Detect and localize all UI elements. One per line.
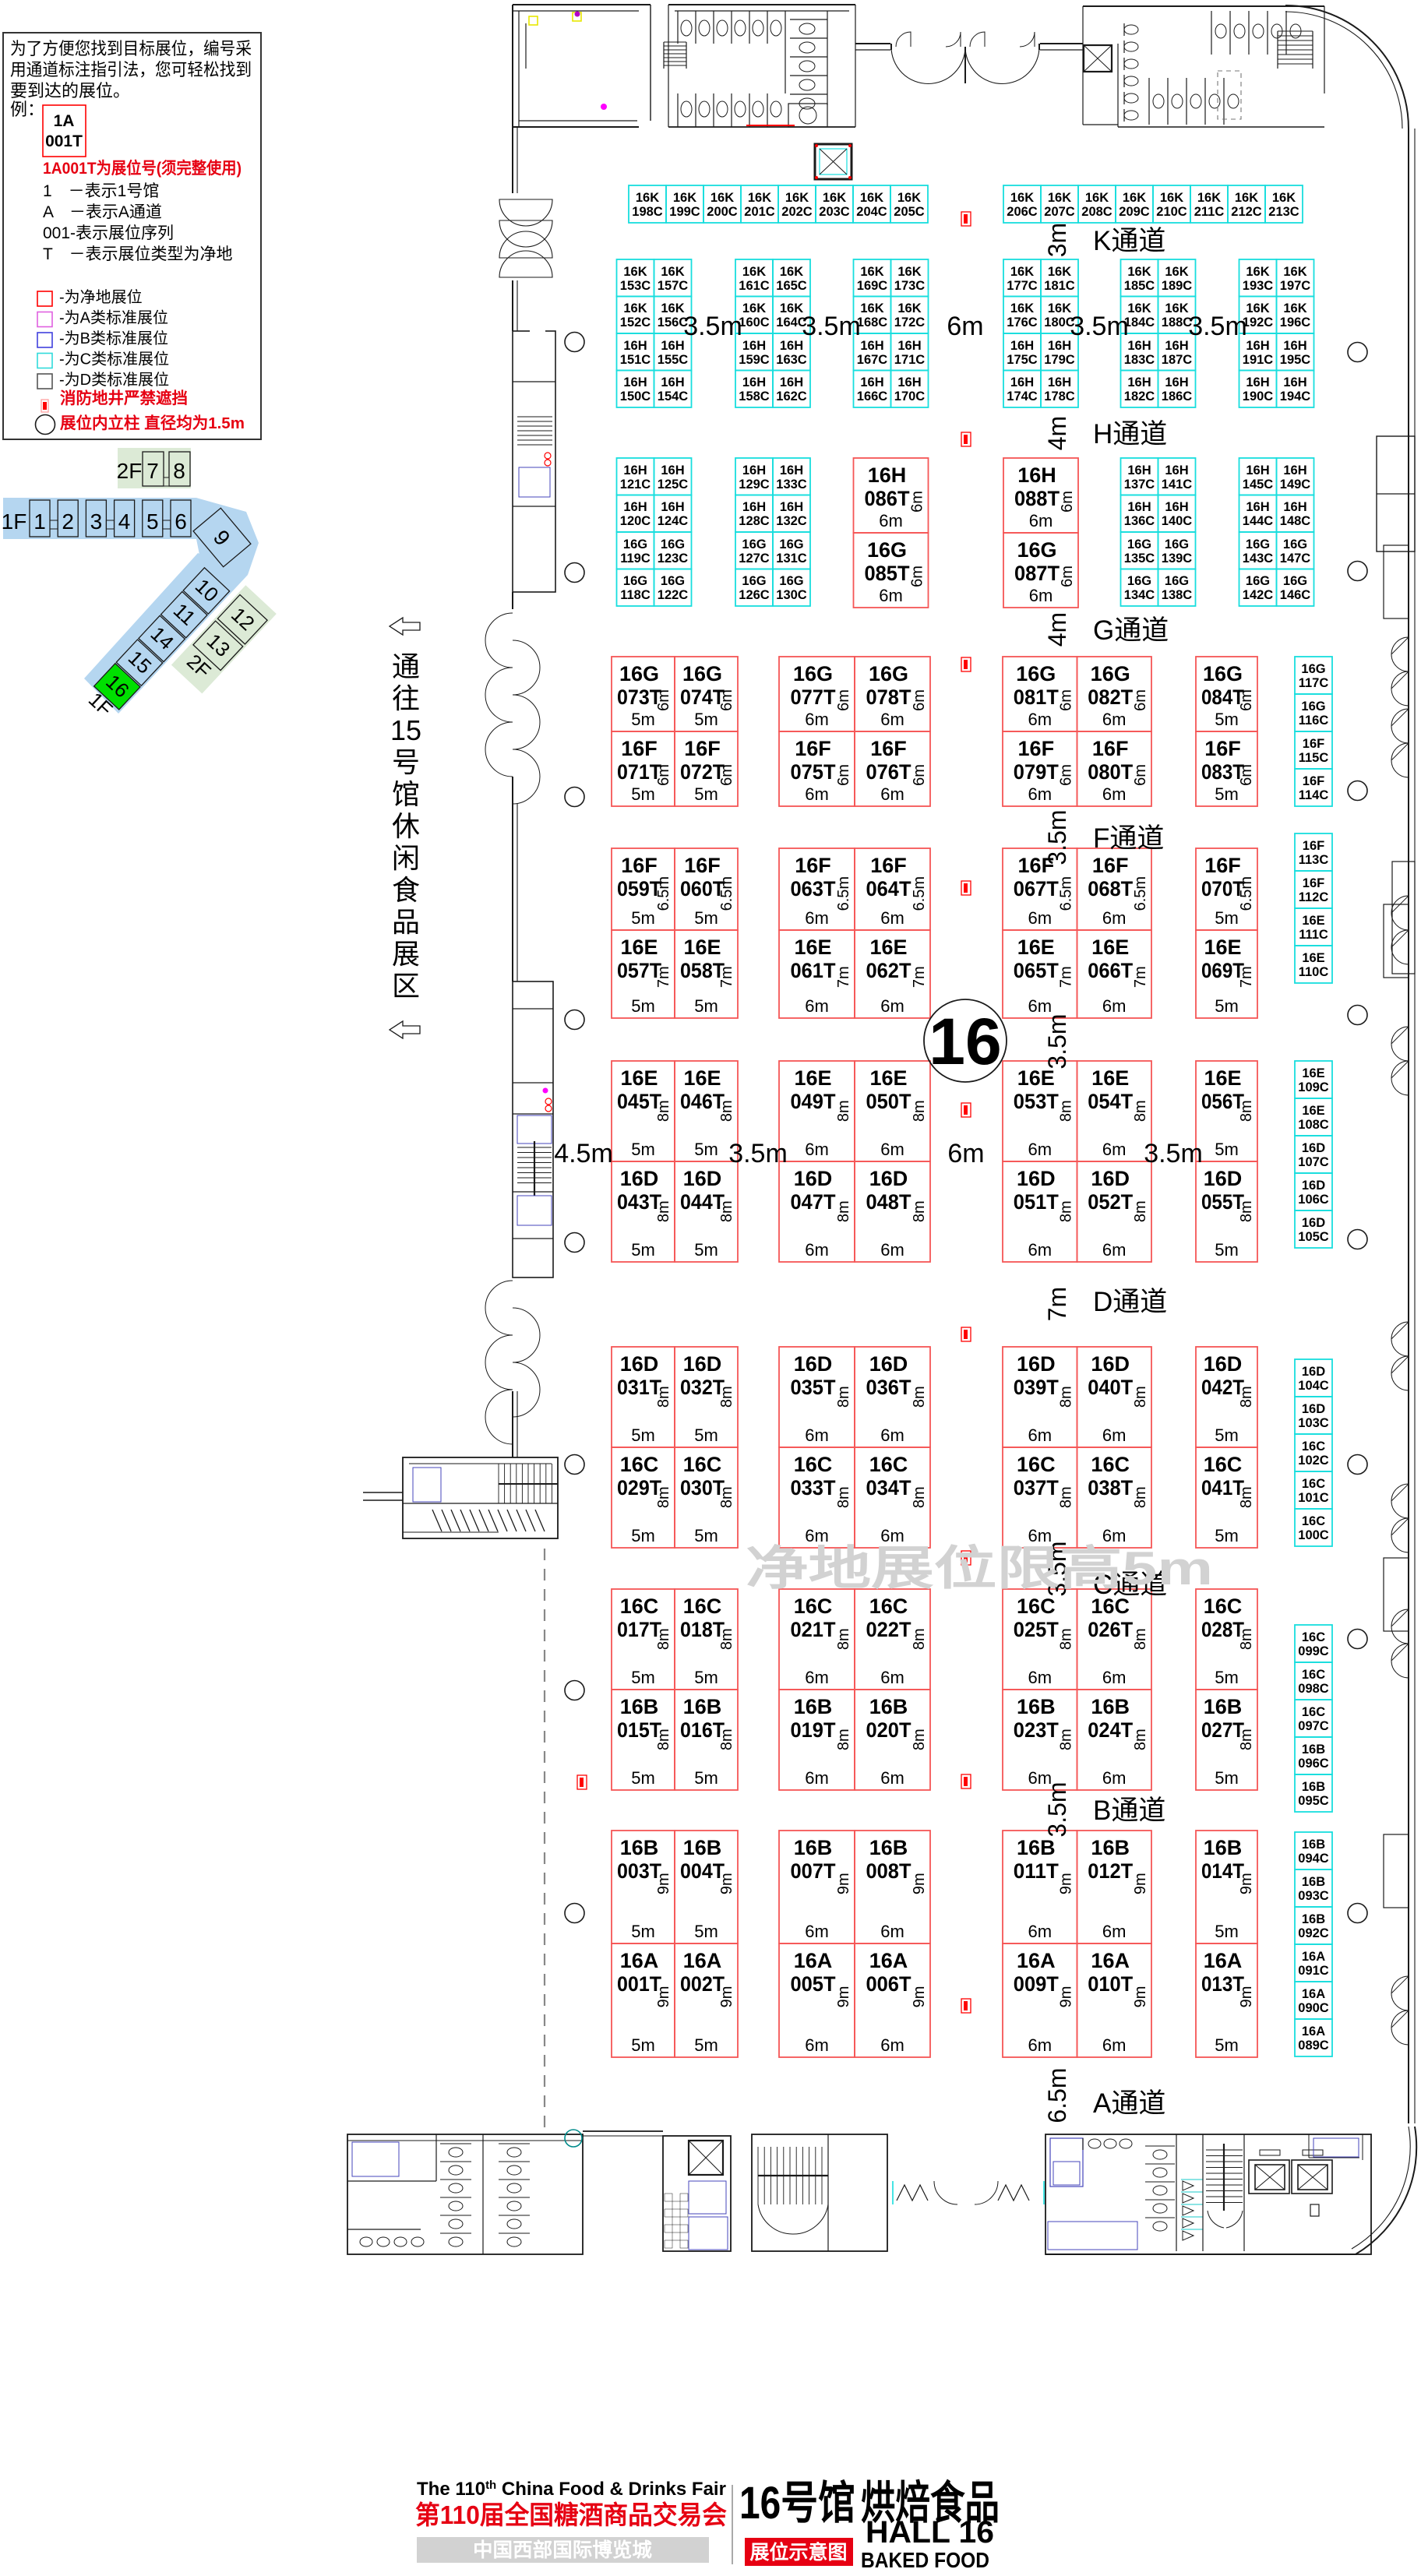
svg-text:16G: 16G bbox=[742, 537, 766, 551]
svg-text:16G: 16G bbox=[1127, 537, 1151, 551]
svg-text:4m: 4m bbox=[1043, 416, 1071, 450]
svg-text:187C: 187C bbox=[1162, 353, 1193, 367]
svg-text:16H: 16H bbox=[1165, 500, 1188, 514]
svg-text:16F: 16F bbox=[870, 854, 907, 877]
svg-text:16E: 16E bbox=[869, 1066, 907, 1090]
svg-text:16H: 16H bbox=[780, 500, 803, 514]
svg-text:5m: 5m bbox=[694, 1526, 718, 1545]
svg-text:16H: 16H bbox=[1048, 375, 1071, 389]
svg-text:9m: 9m bbox=[718, 1986, 735, 2008]
svg-text:050T: 050T bbox=[866, 1090, 911, 1113]
svg-text:5m: 5m bbox=[631, 710, 655, 729]
svg-text:9m: 9m bbox=[718, 1873, 735, 1894]
svg-text:16D: 16D bbox=[683, 1167, 722, 1190]
svg-text:16C: 16C bbox=[1302, 1514, 1325, 1528]
svg-text:16H: 16H bbox=[1017, 463, 1056, 487]
svg-text:117C: 117C bbox=[1299, 676, 1329, 690]
svg-text:038T: 038T bbox=[1088, 1476, 1133, 1499]
svg-text:3.5m: 3.5m bbox=[1188, 312, 1247, 341]
svg-text:6m: 6m bbox=[1029, 511, 1053, 530]
svg-text:16G: 16G bbox=[742, 574, 766, 588]
svg-text:6m: 6m bbox=[1102, 2035, 1127, 2055]
svg-text:往: 往 bbox=[392, 682, 420, 714]
svg-text:148C: 148C bbox=[1280, 514, 1311, 528]
svg-text:102C: 102C bbox=[1298, 1454, 1329, 1468]
svg-text:088T: 088T bbox=[1014, 487, 1060, 510]
svg-text:16E: 16E bbox=[1302, 1104, 1324, 1118]
svg-text:6m: 6m bbox=[1028, 1425, 1053, 1445]
svg-text:174C: 174C bbox=[1007, 389, 1038, 403]
svg-text:The 110th China Food & Drinks: The 110th China Food & Drinks Fair bbox=[417, 2479, 726, 2500]
svg-text:16: 16 bbox=[929, 1005, 1001, 1078]
svg-text:16G: 16G bbox=[1301, 662, 1325, 676]
svg-text:7: 7 bbox=[146, 459, 159, 483]
svg-text:2F: 2F bbox=[117, 459, 143, 483]
svg-text:167C: 167C bbox=[857, 353, 888, 367]
svg-text:6m: 6m bbox=[1028, 1668, 1053, 1687]
svg-text:16D: 16D bbox=[1204, 1167, 1243, 1190]
svg-text:16G: 16G bbox=[1165, 574, 1189, 588]
svg-text:16K: 16K bbox=[1048, 301, 1071, 315]
svg-text:16K: 16K bbox=[1048, 265, 1071, 279]
svg-text:6: 6 bbox=[175, 509, 187, 534]
svg-text:206C: 206C bbox=[1007, 205, 1038, 219]
svg-text:022T: 022T bbox=[866, 1618, 911, 1641]
svg-text:16H: 16H bbox=[868, 463, 907, 487]
svg-text:064T: 064T bbox=[866, 877, 911, 900]
svg-text:16A: 16A bbox=[794, 1949, 833, 1972]
svg-text:8m: 8m bbox=[1238, 1628, 1255, 1650]
svg-text:5m: 5m bbox=[694, 908, 718, 928]
svg-text:16H: 16H bbox=[1246, 375, 1269, 389]
svg-text:16B: 16B bbox=[1302, 1875, 1325, 1889]
svg-text:3.5m: 3.5m bbox=[683, 312, 742, 341]
svg-text:16E: 16E bbox=[620, 1066, 658, 1090]
svg-text:16C: 16C bbox=[1017, 1453, 1056, 1476]
svg-text:037T: 037T bbox=[1014, 1476, 1059, 1499]
svg-text:G通道: G通道 bbox=[1093, 615, 1169, 646]
svg-text:204C: 204C bbox=[856, 205, 887, 219]
svg-text:16C: 16C bbox=[1091, 1453, 1130, 1476]
svg-text:5m: 5m bbox=[694, 710, 718, 729]
svg-text:16H: 16H bbox=[1127, 339, 1151, 353]
svg-text:要到达的展位。: 要到达的展位。 bbox=[10, 81, 130, 100]
svg-text:006T: 006T bbox=[866, 1972, 911, 1996]
svg-text:6m: 6m bbox=[880, 710, 904, 729]
svg-text:063T: 063T bbox=[791, 877, 836, 900]
svg-text:053T: 053T bbox=[1014, 1090, 1059, 1113]
svg-text:052T: 052T bbox=[1088, 1190, 1133, 1214]
svg-text:3.5m: 3.5m bbox=[1043, 1781, 1071, 1837]
svg-text:068T: 068T bbox=[1088, 877, 1133, 900]
svg-text:6.5m: 6.5m bbox=[835, 876, 852, 911]
svg-text:6m: 6m bbox=[947, 1139, 984, 1168]
svg-text:011T: 011T bbox=[1014, 1859, 1059, 1883]
svg-text:6m: 6m bbox=[805, 908, 829, 928]
svg-text:066T: 066T bbox=[1088, 959, 1133, 982]
svg-text:191C: 191C bbox=[1243, 353, 1274, 367]
svg-text:172C: 172C bbox=[894, 315, 926, 329]
svg-text:106C: 106C bbox=[1298, 1193, 1329, 1207]
svg-text:099C: 099C bbox=[1298, 1644, 1329, 1658]
svg-text:131C: 131C bbox=[776, 551, 807, 566]
svg-text:6m: 6m bbox=[805, 1140, 829, 1159]
svg-text:16E: 16E bbox=[869, 936, 907, 959]
svg-text:3.5m: 3.5m bbox=[1043, 1013, 1071, 1069]
svg-text:16H: 16H bbox=[661, 375, 684, 389]
svg-text:16E: 16E bbox=[620, 936, 658, 959]
svg-text:16H: 16H bbox=[1010, 375, 1034, 389]
svg-text:103C: 103C bbox=[1298, 1416, 1329, 1430]
svg-text:3.5m: 3.5m bbox=[802, 312, 861, 341]
svg-text:190C: 190C bbox=[1243, 389, 1274, 403]
svg-text:16D: 16D bbox=[1302, 1365, 1325, 1379]
svg-text:061T: 061T bbox=[791, 959, 836, 982]
svg-text:16G: 16G bbox=[1246, 574, 1270, 588]
svg-text:107C: 107C bbox=[1298, 1155, 1329, 1169]
svg-text:6m: 6m bbox=[880, 908, 904, 928]
svg-text:16G: 16G bbox=[1246, 537, 1270, 551]
svg-text:16K: 16K bbox=[1272, 191, 1296, 205]
svg-text:16H: 16H bbox=[742, 339, 766, 353]
svg-text:16C: 16C bbox=[620, 1595, 659, 1618]
svg-text:16A: 16A bbox=[620, 1949, 659, 1972]
svg-text:16G: 16G bbox=[1127, 574, 1151, 588]
svg-text:109C: 109C bbox=[1298, 1080, 1329, 1094]
svg-text:16B: 16B bbox=[1091, 1695, 1130, 1718]
svg-text:163C: 163C bbox=[776, 353, 807, 367]
svg-text:16F: 16F bbox=[1204, 854, 1241, 877]
svg-text:6m: 6m bbox=[880, 1240, 904, 1260]
svg-text:9m: 9m bbox=[835, 1986, 852, 2008]
svg-text:6m: 6m bbox=[911, 764, 928, 786]
svg-text:001T: 001T bbox=[45, 132, 83, 150]
svg-text:039T: 039T bbox=[1014, 1376, 1059, 1399]
svg-text:16C: 16C bbox=[1302, 1705, 1325, 1719]
svg-text:210C: 210C bbox=[1156, 205, 1187, 219]
svg-text:16D: 16D bbox=[869, 1167, 908, 1190]
svg-text:026T: 026T bbox=[1088, 1618, 1133, 1641]
svg-text:16H: 16H bbox=[623, 339, 647, 353]
svg-text:6m: 6m bbox=[880, 784, 904, 804]
svg-text:208C: 208C bbox=[1081, 205, 1112, 219]
svg-text:5m: 5m bbox=[694, 1768, 718, 1788]
svg-text:16K: 16K bbox=[780, 265, 803, 279]
svg-text:6m: 6m bbox=[805, 1240, 829, 1260]
svg-text:16D: 16D bbox=[620, 1352, 659, 1376]
svg-text:16C: 16C bbox=[1017, 1595, 1056, 1618]
svg-text:6.5m: 6.5m bbox=[1132, 876, 1149, 911]
svg-text:6m: 6m bbox=[1102, 1425, 1127, 1445]
svg-text:6m: 6m bbox=[805, 784, 829, 804]
svg-text:6m: 6m bbox=[1028, 1140, 1053, 1159]
svg-text:5m: 5m bbox=[1215, 1768, 1239, 1788]
svg-text:178C: 178C bbox=[1044, 389, 1075, 403]
svg-text:5m: 5m bbox=[694, 2035, 718, 2055]
svg-text:7m: 7m bbox=[911, 966, 928, 988]
svg-text:16K: 16K bbox=[1165, 265, 1188, 279]
svg-text:6m: 6m bbox=[879, 511, 903, 530]
svg-text:095C: 095C bbox=[1298, 1794, 1329, 1808]
svg-text:145C: 145C bbox=[1243, 477, 1274, 492]
svg-text:8m: 8m bbox=[1238, 1728, 1255, 1750]
svg-text:16K: 16K bbox=[860, 265, 883, 279]
svg-text:010T: 010T bbox=[1088, 1972, 1133, 1996]
svg-text:054T: 054T bbox=[1088, 1090, 1133, 1113]
svg-text:品: 品 bbox=[392, 906, 420, 938]
svg-text:16G: 16G bbox=[793, 662, 833, 685]
svg-text:1 －表示1号馆: 1 －表示1号馆 bbox=[43, 182, 159, 200]
svg-text:16F: 16F bbox=[684, 737, 721, 760]
svg-text:136C: 136C bbox=[1124, 514, 1155, 528]
svg-text:8m: 8m bbox=[1058, 1728, 1075, 1750]
svg-text:196C: 196C bbox=[1280, 315, 1311, 329]
svg-text:6m: 6m bbox=[880, 1668, 904, 1687]
svg-text:108C: 108C bbox=[1298, 1118, 1329, 1132]
svg-text:205C: 205C bbox=[894, 205, 925, 219]
svg-text:2: 2 bbox=[62, 509, 74, 534]
svg-text:16F: 16F bbox=[795, 737, 831, 760]
svg-text:8m: 8m bbox=[1058, 1486, 1075, 1508]
svg-text:171C: 171C bbox=[894, 353, 926, 367]
svg-text:9m: 9m bbox=[655, 1873, 672, 1894]
svg-text:8m: 8m bbox=[718, 1100, 735, 1122]
svg-text:16G: 16G bbox=[619, 662, 659, 685]
svg-text:126C: 126C bbox=[739, 588, 770, 602]
svg-text:157C: 157C bbox=[658, 279, 689, 293]
svg-text:179C: 179C bbox=[1044, 353, 1075, 367]
svg-text:169C: 169C bbox=[857, 279, 888, 293]
svg-text:9m: 9m bbox=[1132, 1986, 1149, 2008]
svg-text:食: 食 bbox=[392, 874, 420, 906]
svg-text:036T: 036T bbox=[866, 1376, 911, 1399]
svg-text:16D: 16D bbox=[620, 1167, 659, 1190]
svg-text:16H: 16H bbox=[1283, 375, 1306, 389]
svg-text:185C: 185C bbox=[1124, 279, 1155, 293]
svg-text:023T: 023T bbox=[1014, 1718, 1059, 1742]
svg-text:16K: 16K bbox=[823, 191, 846, 205]
svg-text:16E: 16E bbox=[1302, 1066, 1324, 1080]
svg-text:16E: 16E bbox=[1204, 936, 1241, 959]
svg-text:16E: 16E bbox=[794, 936, 831, 959]
svg-text:8m: 8m bbox=[1132, 1728, 1149, 1750]
svg-text:207C: 207C bbox=[1044, 205, 1075, 219]
svg-text:5m: 5m bbox=[694, 1922, 718, 1941]
svg-text:D通道: D通道 bbox=[1093, 1287, 1167, 1317]
svg-text:6m: 6m bbox=[718, 764, 735, 786]
svg-text:第110届全国糖酒商品交易会: 第110届全国糖酒商品交易会 bbox=[415, 2500, 727, 2529]
svg-text:076T: 076T bbox=[866, 760, 911, 784]
svg-text:155C: 155C bbox=[658, 353, 689, 367]
svg-text:7m: 7m bbox=[1238, 966, 1255, 988]
svg-text:7m: 7m bbox=[718, 966, 735, 988]
svg-text:16K: 16K bbox=[636, 191, 659, 205]
svg-text:5m: 5m bbox=[694, 996, 718, 1016]
svg-text:202C: 202C bbox=[781, 205, 813, 219]
svg-text:6m: 6m bbox=[880, 1768, 904, 1788]
svg-text:16K: 16K bbox=[897, 301, 921, 315]
svg-text:16K: 16K bbox=[1010, 265, 1034, 279]
svg-text:6m: 6m bbox=[1132, 689, 1149, 711]
svg-text:16G: 16G bbox=[682, 662, 722, 685]
svg-text:16K: 16K bbox=[785, 191, 809, 205]
svg-text:5m: 5m bbox=[694, 1140, 718, 1159]
svg-text:16B: 16B bbox=[1302, 1780, 1325, 1794]
svg-text:144C: 144C bbox=[1243, 514, 1274, 528]
svg-text:160C: 160C bbox=[739, 315, 770, 329]
svg-text:8m: 8m bbox=[655, 1486, 672, 1508]
svg-text:5m: 5m bbox=[1215, 2035, 1239, 2055]
svg-text:16F: 16F bbox=[870, 737, 907, 760]
svg-text:8m: 8m bbox=[1132, 1486, 1149, 1508]
svg-text:16K: 16K bbox=[1165, 301, 1188, 315]
svg-text:16B: 16B bbox=[620, 1695, 659, 1718]
svg-text:16E: 16E bbox=[1091, 1066, 1129, 1090]
svg-text:16G: 16G bbox=[1016, 662, 1056, 685]
svg-text:16E: 16E bbox=[683, 1066, 721, 1090]
svg-text:120C: 120C bbox=[620, 514, 651, 528]
svg-text:16K: 16K bbox=[710, 191, 734, 205]
svg-text:16D: 16D bbox=[794, 1352, 833, 1376]
svg-text:16D: 16D bbox=[794, 1167, 833, 1190]
svg-text:195C: 195C bbox=[1280, 353, 1311, 367]
svg-text:101C: 101C bbox=[1298, 1491, 1329, 1505]
svg-text:16G: 16G bbox=[1301, 700, 1325, 714]
svg-text:K通道: K通道 bbox=[1093, 226, 1165, 256]
svg-text:194C: 194C bbox=[1280, 389, 1311, 403]
svg-text:211C: 211C bbox=[1194, 205, 1225, 219]
svg-text:16G: 16G bbox=[1165, 537, 1189, 551]
svg-text:085T: 085T bbox=[865, 562, 910, 585]
svg-text:170C: 170C bbox=[894, 389, 926, 403]
svg-text:16H: 16H bbox=[780, 463, 803, 477]
svg-text:020T: 020T bbox=[866, 1718, 911, 1742]
svg-text:158C: 158C bbox=[739, 389, 770, 403]
svg-text:8m: 8m bbox=[1132, 1628, 1149, 1650]
svg-text:4.5m: 4.5m bbox=[554, 1139, 613, 1168]
svg-text:154C: 154C bbox=[658, 389, 689, 403]
svg-text:199C: 199C bbox=[669, 205, 700, 219]
svg-text:135C: 135C bbox=[1124, 551, 1155, 566]
svg-text:16F: 16F bbox=[1092, 854, 1129, 877]
svg-text:-为B类标准展位: -为B类标准展位 bbox=[59, 329, 168, 347]
svg-text:081T: 081T bbox=[1014, 685, 1059, 709]
svg-text:6m: 6m bbox=[1102, 1240, 1127, 1260]
svg-text:159C: 159C bbox=[739, 353, 770, 367]
svg-text:16H: 16H bbox=[897, 339, 921, 353]
svg-text:111C: 111C bbox=[1299, 928, 1328, 942]
svg-text:6m: 6m bbox=[805, 1425, 829, 1445]
svg-text:8m: 8m bbox=[835, 1486, 852, 1508]
svg-text:213C: 213C bbox=[1268, 205, 1299, 219]
svg-text:16E: 16E bbox=[1302, 951, 1324, 965]
svg-text:143C: 143C bbox=[1243, 551, 1274, 566]
svg-text:16H: 16H bbox=[1165, 463, 1188, 477]
svg-text:193C: 193C bbox=[1243, 279, 1274, 293]
svg-text:16G: 16G bbox=[869, 662, 908, 685]
svg-text:9m: 9m bbox=[1132, 1873, 1149, 1894]
svg-text:6m: 6m bbox=[805, 2035, 829, 2055]
svg-text:8m: 8m bbox=[835, 1386, 852, 1408]
svg-text:展: 展 bbox=[392, 938, 420, 970]
svg-text:6m: 6m bbox=[805, 996, 829, 1016]
svg-text:176C: 176C bbox=[1007, 315, 1038, 329]
svg-text:16G: 16G bbox=[1091, 662, 1130, 685]
svg-text:5m: 5m bbox=[694, 1668, 718, 1687]
svg-text:16H: 16H bbox=[623, 375, 647, 389]
svg-text:147C: 147C bbox=[1280, 551, 1311, 566]
svg-text:16E: 16E bbox=[1204, 1066, 1241, 1090]
svg-text:019T: 019T bbox=[791, 1718, 836, 1742]
svg-text:16F: 16F bbox=[621, 737, 658, 760]
svg-text:6m: 6m bbox=[835, 689, 852, 711]
svg-text:16H: 16H bbox=[1283, 500, 1306, 514]
svg-text:189C: 189C bbox=[1162, 279, 1193, 293]
svg-text:4: 4 bbox=[118, 509, 131, 534]
svg-text:152C: 152C bbox=[620, 315, 651, 329]
svg-text:5m: 5m bbox=[631, 784, 655, 804]
svg-text:16G: 16G bbox=[623, 574, 647, 588]
svg-text:3m: 3m bbox=[1043, 223, 1071, 257]
svg-text:8m: 8m bbox=[718, 1728, 735, 1750]
svg-text:8m: 8m bbox=[911, 1728, 928, 1750]
svg-text:16H: 16H bbox=[1246, 339, 1269, 353]
svg-text:16B: 16B bbox=[620, 1836, 659, 1859]
svg-text:16H: 16H bbox=[1283, 339, 1306, 353]
svg-text:5m: 5m bbox=[694, 1425, 718, 1445]
svg-text:16A: 16A bbox=[1091, 1949, 1130, 1972]
svg-text:5m: 5m bbox=[631, 1240, 655, 1260]
svg-text:008T: 008T bbox=[866, 1859, 911, 1883]
svg-text:8m: 8m bbox=[1238, 1200, 1255, 1222]
svg-text:16K: 16K bbox=[623, 265, 647, 279]
svg-text:16G: 16G bbox=[1203, 662, 1243, 685]
svg-text:121C: 121C bbox=[620, 477, 651, 492]
svg-text:009T: 009T bbox=[1014, 1972, 1059, 1996]
svg-text:127C: 127C bbox=[739, 551, 770, 566]
svg-text:3.5m: 3.5m bbox=[728, 1139, 788, 1168]
svg-text:16H: 16H bbox=[742, 375, 766, 389]
svg-text:号: 号 bbox=[392, 746, 420, 778]
svg-text:6m: 6m bbox=[1132, 764, 1149, 786]
svg-text:16F: 16F bbox=[1303, 774, 1324, 788]
svg-text:16E: 16E bbox=[683, 936, 721, 959]
svg-text:6m: 6m bbox=[805, 710, 829, 729]
svg-text:16D: 16D bbox=[869, 1352, 908, 1376]
svg-text:16H: 16H bbox=[1246, 500, 1269, 514]
svg-text:5m: 5m bbox=[631, 1425, 655, 1445]
svg-text:6m: 6m bbox=[1238, 764, 1255, 786]
svg-text:-为A类标准展位: -为A类标准展位 bbox=[59, 309, 168, 327]
svg-text:6m: 6m bbox=[655, 764, 672, 786]
svg-text:6m: 6m bbox=[1028, 784, 1053, 804]
svg-text:16K: 16K bbox=[860, 301, 883, 315]
svg-text:075T: 075T bbox=[791, 760, 836, 784]
svg-text:5m: 5m bbox=[1215, 710, 1239, 729]
svg-text:16K: 16K bbox=[1010, 191, 1034, 205]
svg-text:118C: 118C bbox=[620, 588, 651, 602]
svg-text:16K: 16K bbox=[860, 191, 883, 205]
svg-text:16A: 16A bbox=[869, 1949, 908, 1972]
svg-text:16B: 16B bbox=[794, 1695, 833, 1718]
svg-text:6m: 6m bbox=[1028, 710, 1053, 729]
svg-text:114C: 114C bbox=[1299, 788, 1329, 802]
svg-text:H通道: H通道 bbox=[1093, 419, 1167, 449]
svg-text:6m: 6m bbox=[1029, 586, 1053, 605]
svg-text:181C: 181C bbox=[1044, 279, 1075, 293]
svg-text:3.5m: 3.5m bbox=[1144, 1139, 1203, 1168]
svg-text:7m: 7m bbox=[1043, 1287, 1071, 1321]
